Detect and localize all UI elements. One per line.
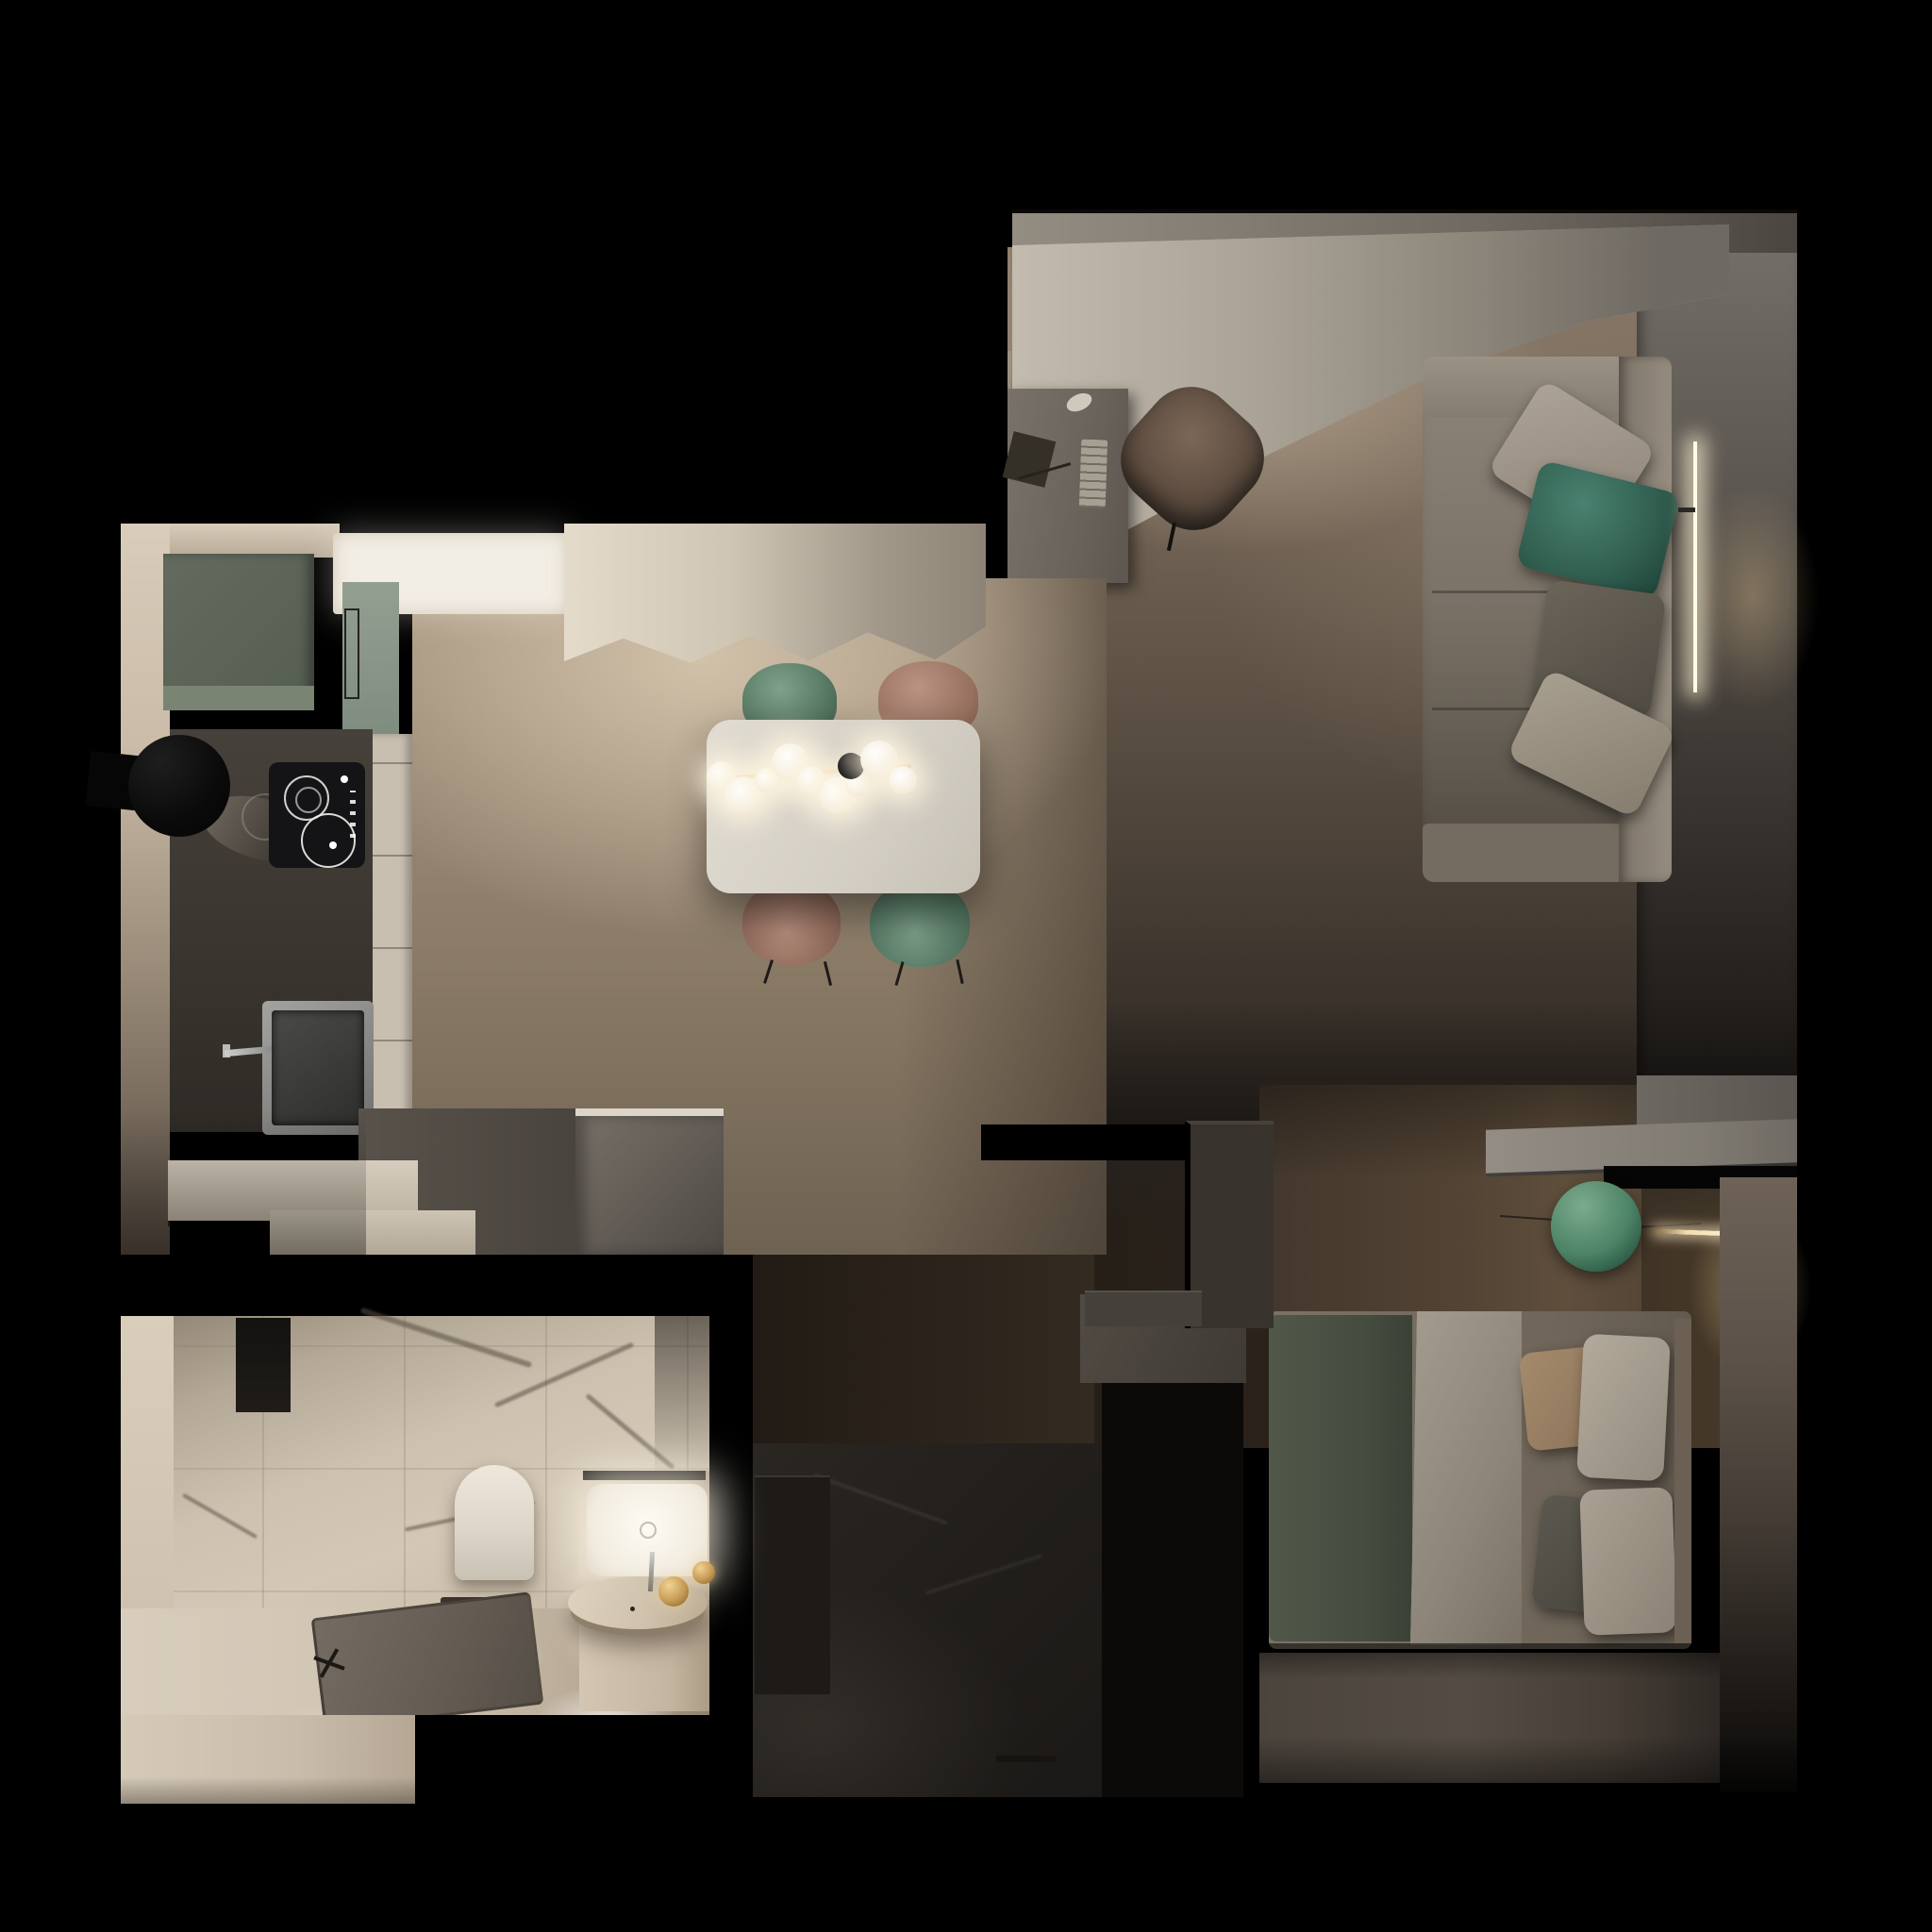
keyboard [1079,440,1108,508]
brass-sphere-lamp-small [692,1561,715,1584]
partition-half-wall-front [1102,1383,1243,1797]
bath-floor-extension [121,1715,415,1804]
green-duvet [1269,1315,1412,1641]
dining-chair-green-bottom [870,882,970,967]
bed-shadow [1269,1643,1691,1653]
tray-dot [630,1607,635,1611]
wall-hung-toilet [455,1465,534,1580]
cooker-hood [128,735,230,837]
warm-accent-wall [1720,1177,1797,1792]
tall-sage-cabinet [342,582,399,736]
chandelier-globe [889,766,917,794]
bedroom-floor-fade [1259,1736,1797,1830]
sage-upper-cabinet [163,554,314,710]
room-living-study [1008,209,1797,1167]
headboard-bench [1674,1319,1691,1643]
induction-hob [269,762,365,868]
vanity-wall-slit [583,1471,706,1480]
basin-drain [640,1522,657,1539]
kitchen-corner-shade [121,1108,366,1255]
bath-extension-mask [415,1715,709,1804]
door-threshold-handle [996,1756,1057,1762]
apartment-render [0,0,1932,1932]
brass-sphere-lamp-large [658,1576,689,1607]
black-towel-cabinet [236,1318,291,1412]
bath-corner-shade [655,1316,709,1486]
sofa [1423,357,1672,882]
room-bedroom [1259,1075,1797,1830]
wall-band-black [981,1124,1191,1160]
cabinet-bottom-face [163,686,314,710]
double-bed [1269,1311,1691,1653]
cabinet-handle [344,608,359,699]
burner-ring-inner [295,787,322,813]
dining-chair-rose-bottom [742,882,841,965]
hob-controls [350,791,356,838]
burner-dot [341,775,348,783]
partition-step-slab [1085,1291,1202,1326]
burner-ring [301,813,356,868]
green-globe-pendant [1551,1181,1641,1272]
room-kitchen-dining [121,524,986,1255]
vertical-led-wall-light [1693,441,1697,692]
pillow-white-top [1576,1334,1671,1482]
pendant-wire [1639,1223,1701,1227]
room-bathroom [121,1316,709,1804]
draped-sheet [1410,1311,1522,1645]
storage-cabinet [755,1475,830,1694]
work-desk [1008,389,1128,583]
island-cabinet [575,1116,724,1255]
white-cabinet-run [373,734,412,1132]
pillow-white-bottom [1579,1487,1676,1635]
burner-dot [329,841,337,849]
wall-light-bracket [1678,508,1695,512]
